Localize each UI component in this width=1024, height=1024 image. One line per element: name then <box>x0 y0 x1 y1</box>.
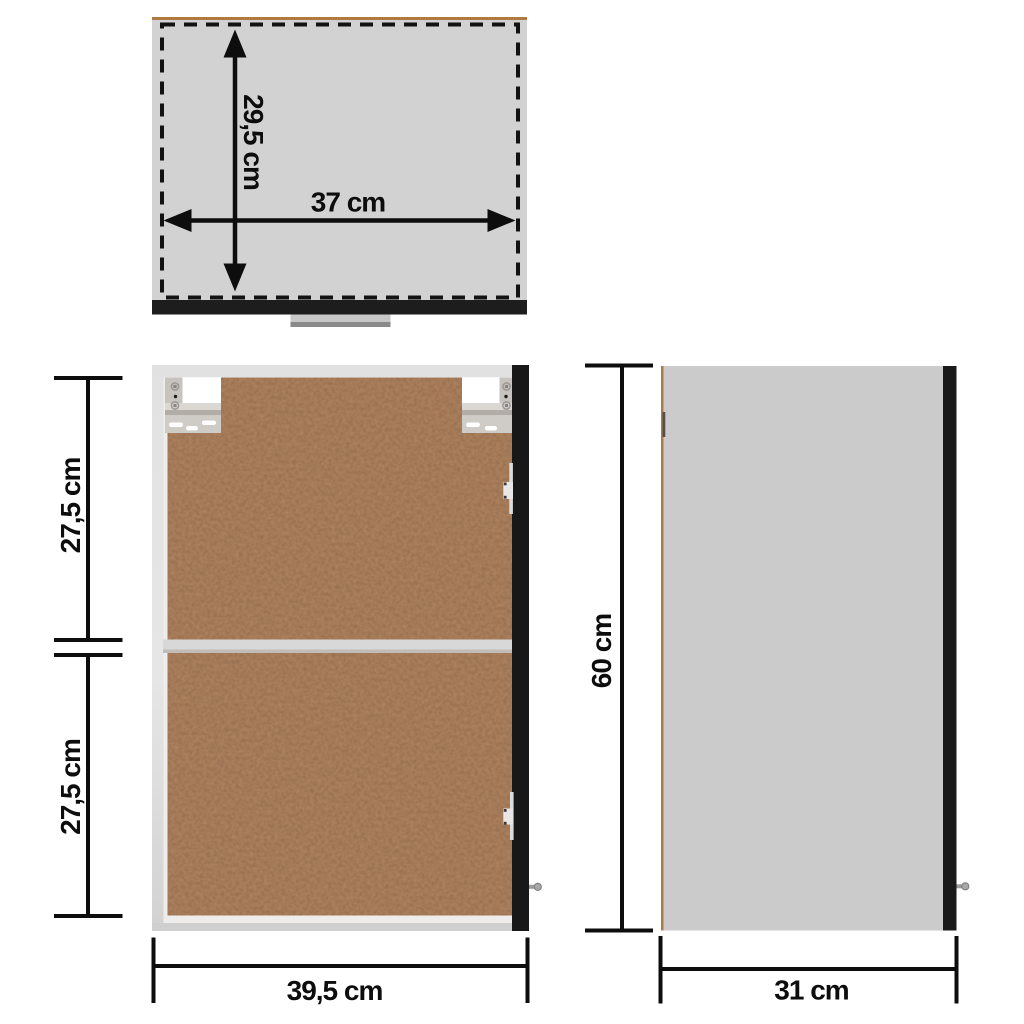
svg-text:27,5 cm: 27,5 cm <box>55 739 86 835</box>
svg-text:60 cm: 60 cm <box>586 614 617 688</box>
svg-text:29,5 cm: 29,5 cm <box>238 94 269 190</box>
svg-text:39,5 cm: 39,5 cm <box>287 975 383 1006</box>
svg-text:31 cm: 31 cm <box>774 975 848 1006</box>
svg-text:37 cm: 37 cm <box>311 187 385 218</box>
svg-text:27,5 cm: 27,5 cm <box>55 458 86 554</box>
